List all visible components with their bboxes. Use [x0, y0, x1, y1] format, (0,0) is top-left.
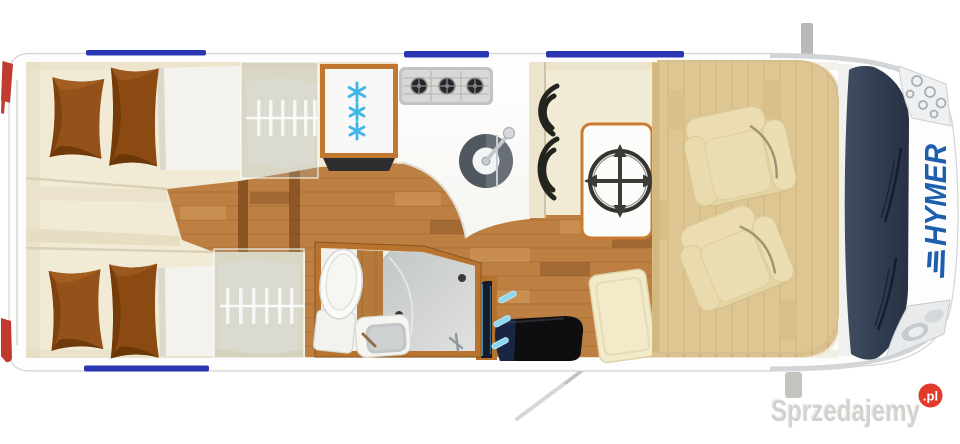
svg-text:.pl: .pl — [923, 389, 938, 404]
svg-text:HYMER: HYMER — [918, 143, 953, 246]
svg-text:Sprzedajemy: Sprzedajemy — [771, 393, 921, 428]
